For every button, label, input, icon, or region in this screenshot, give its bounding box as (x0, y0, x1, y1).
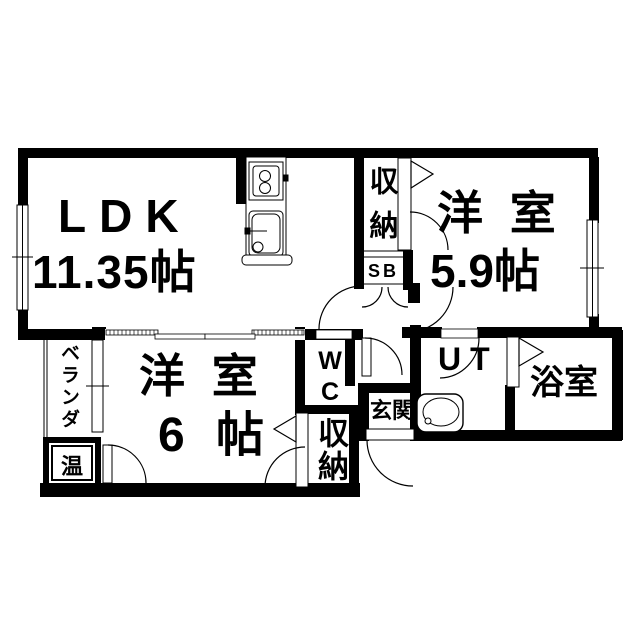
kitchen-unit (242, 157, 292, 265)
hall-small-arc (362, 287, 382, 307)
western-room-59-size: 5.9帖 (430, 248, 540, 294)
entrance-door (366, 429, 414, 486)
window-icon (12, 205, 33, 310)
sliding-partition (105, 329, 305, 340)
utility-label: UT (438, 343, 499, 375)
western-room-6-label: 洋 室 (139, 353, 258, 399)
toilet-label: WC (317, 347, 342, 409)
wc-door-leaf (316, 330, 352, 339)
veranda-glass-door-icon (86, 340, 109, 432)
ldk-label: LDK (58, 193, 192, 239)
genkan-hall-door (362, 338, 402, 376)
washbasin-icon (417, 394, 463, 432)
entrance-label: 玄関 (370, 400, 414, 422)
shoe-box-label: SB (368, 262, 399, 280)
western-room-6-size: 6 帖 (158, 412, 264, 460)
veranda-label: ベランダ (59, 343, 78, 431)
stove-icon (249, 162, 288, 200)
western-room-59-label: 洋 室 (437, 190, 556, 236)
sink-icon (245, 211, 283, 256)
closet-bottom-door (265, 413, 308, 487)
floor-plan-linework (0, 0, 639, 640)
ldk-door-arc (319, 286, 362, 329)
floor-plan: LDK 11.35帖 洋 室 5.9帖 洋 室 6 帖 浴室 UT 玄関 WC … (0, 0, 639, 640)
counter-base (242, 255, 292, 265)
window-icon (580, 220, 604, 317)
heater-door (103, 445, 146, 483)
bathroom-label: 浴室 (530, 366, 598, 400)
water-heater-label: 温 (61, 456, 83, 478)
closet-top-label: 収納 (366, 166, 395, 254)
ldk-size: 11.35帖 (32, 249, 197, 295)
closet-bottom-label: 収納 (315, 417, 346, 483)
